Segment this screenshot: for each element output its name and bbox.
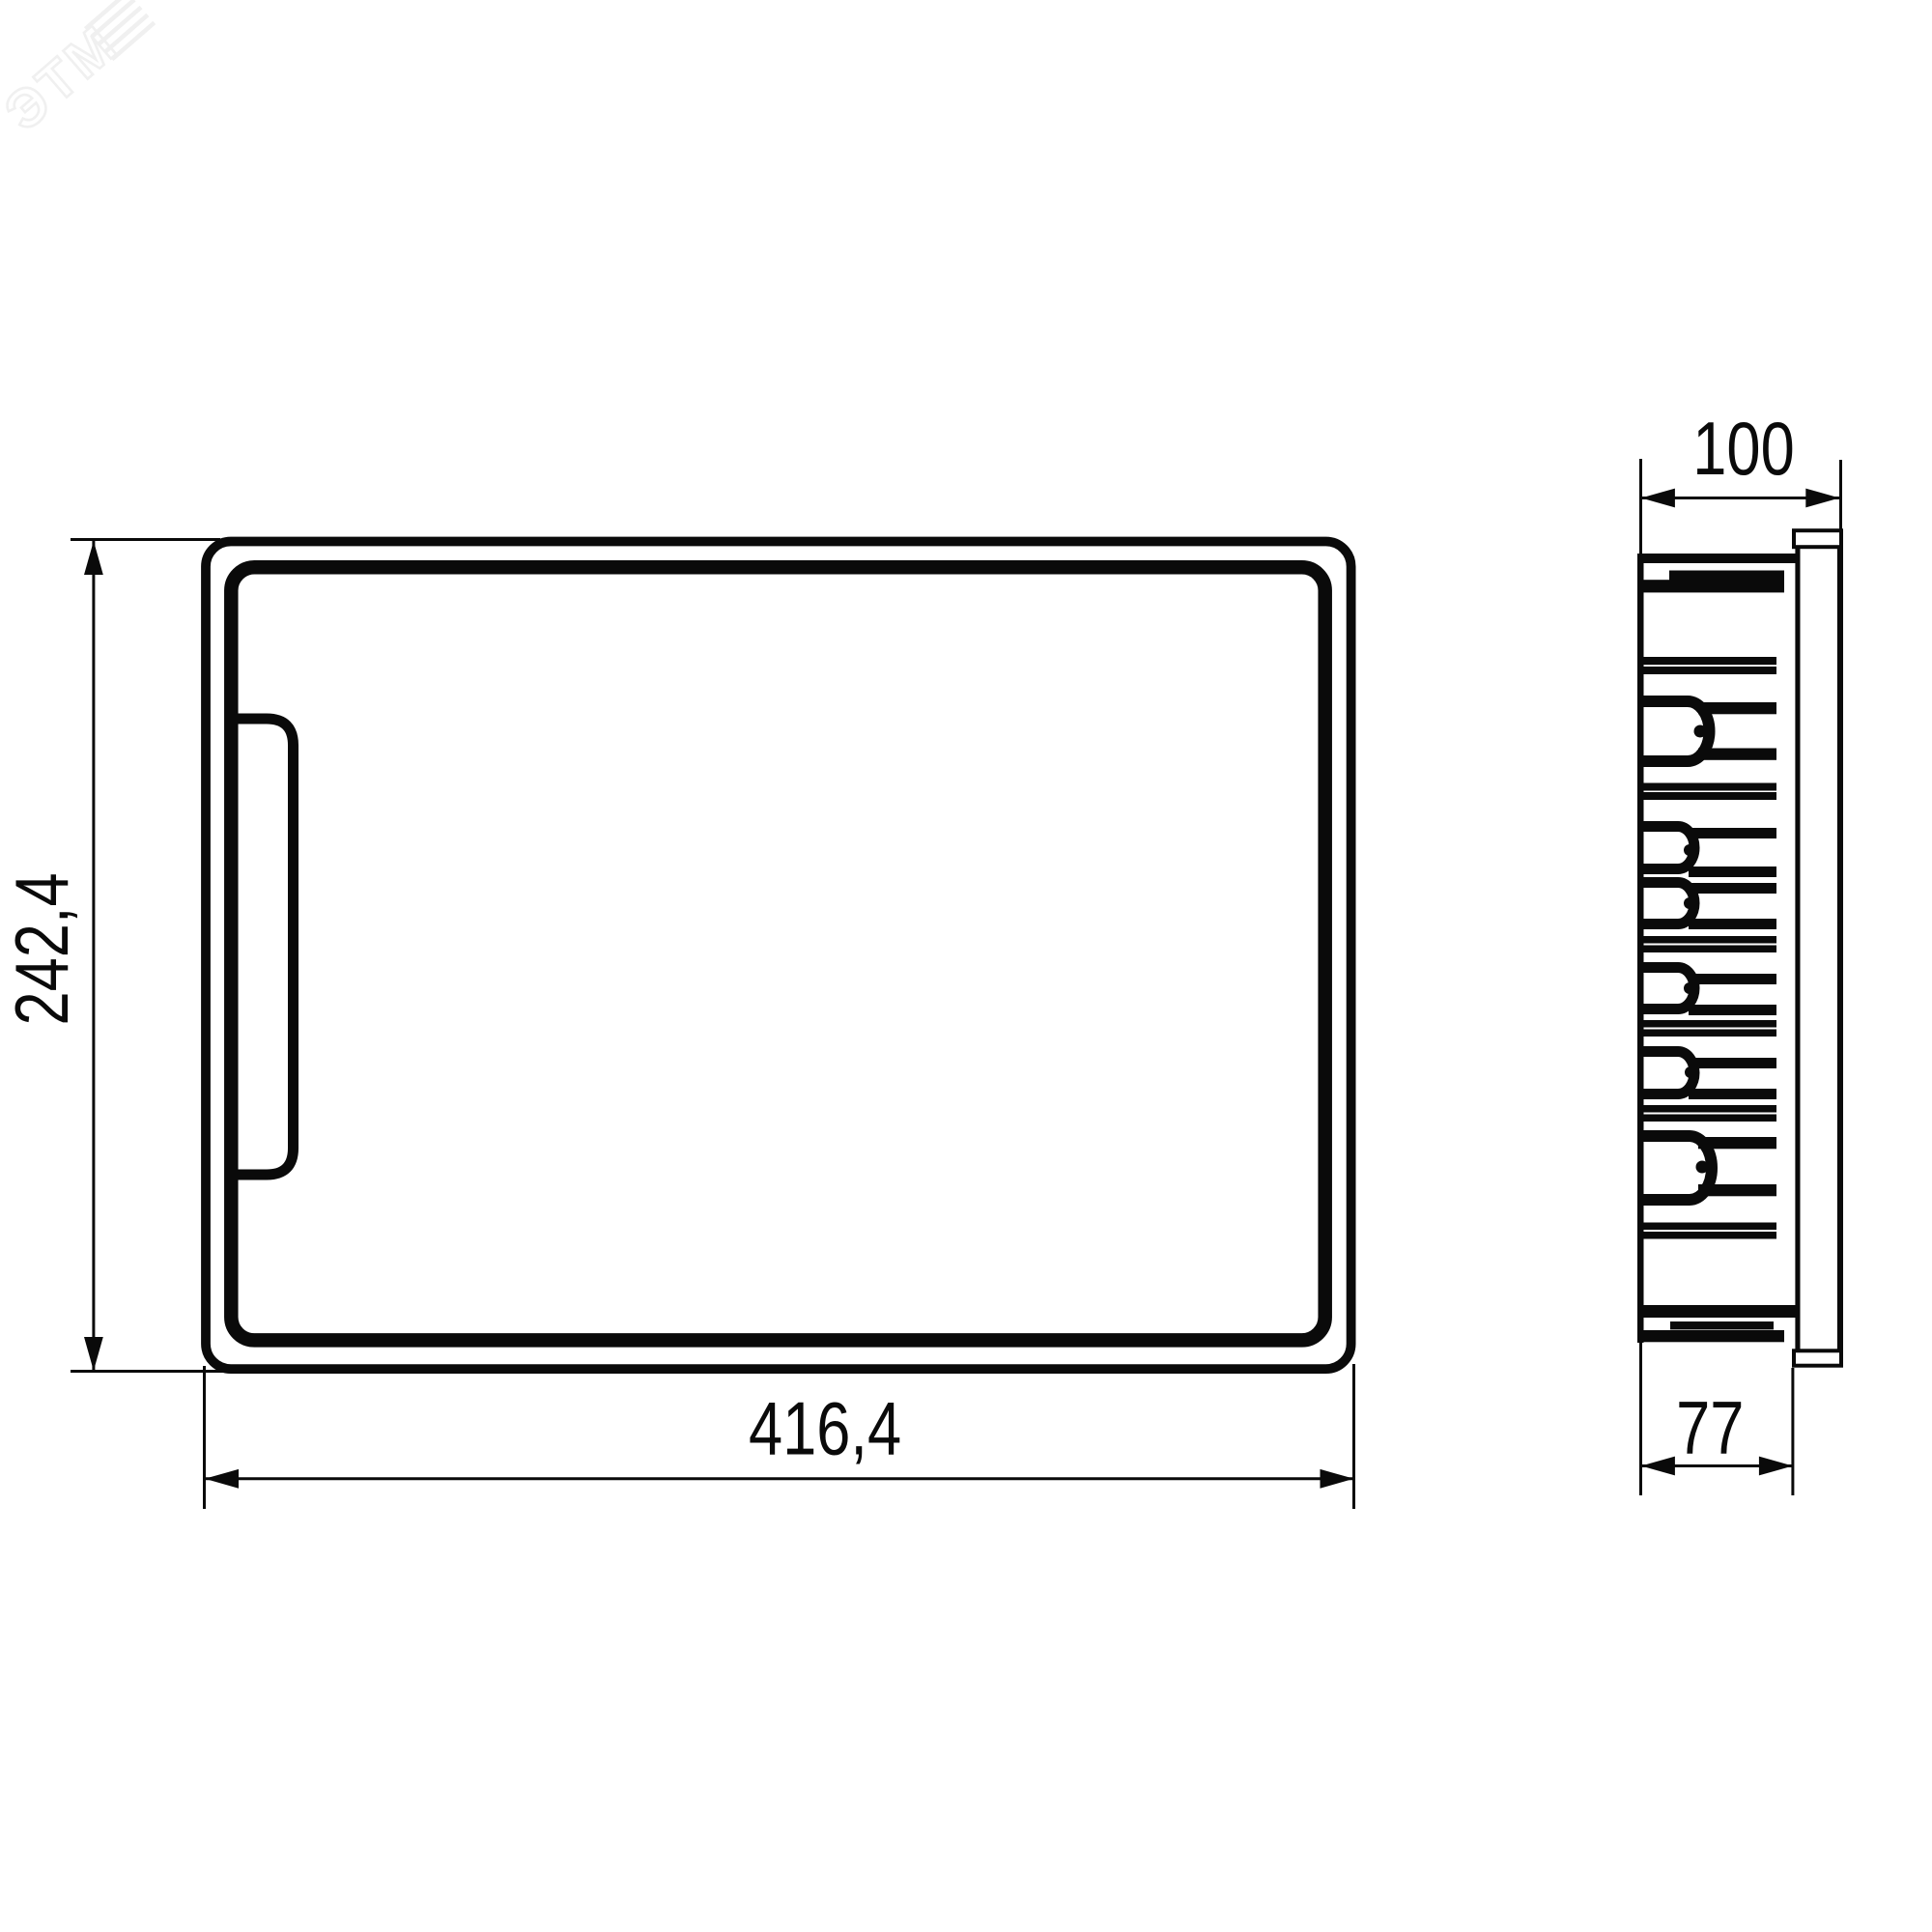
svg-text:416,4: 416,4: [749, 1387, 901, 1471]
svg-text:100: 100: [1692, 408, 1794, 492]
svg-text:242,4: 242,4: [1, 872, 85, 1025]
svg-text:77: 77: [1676, 1387, 1744, 1471]
